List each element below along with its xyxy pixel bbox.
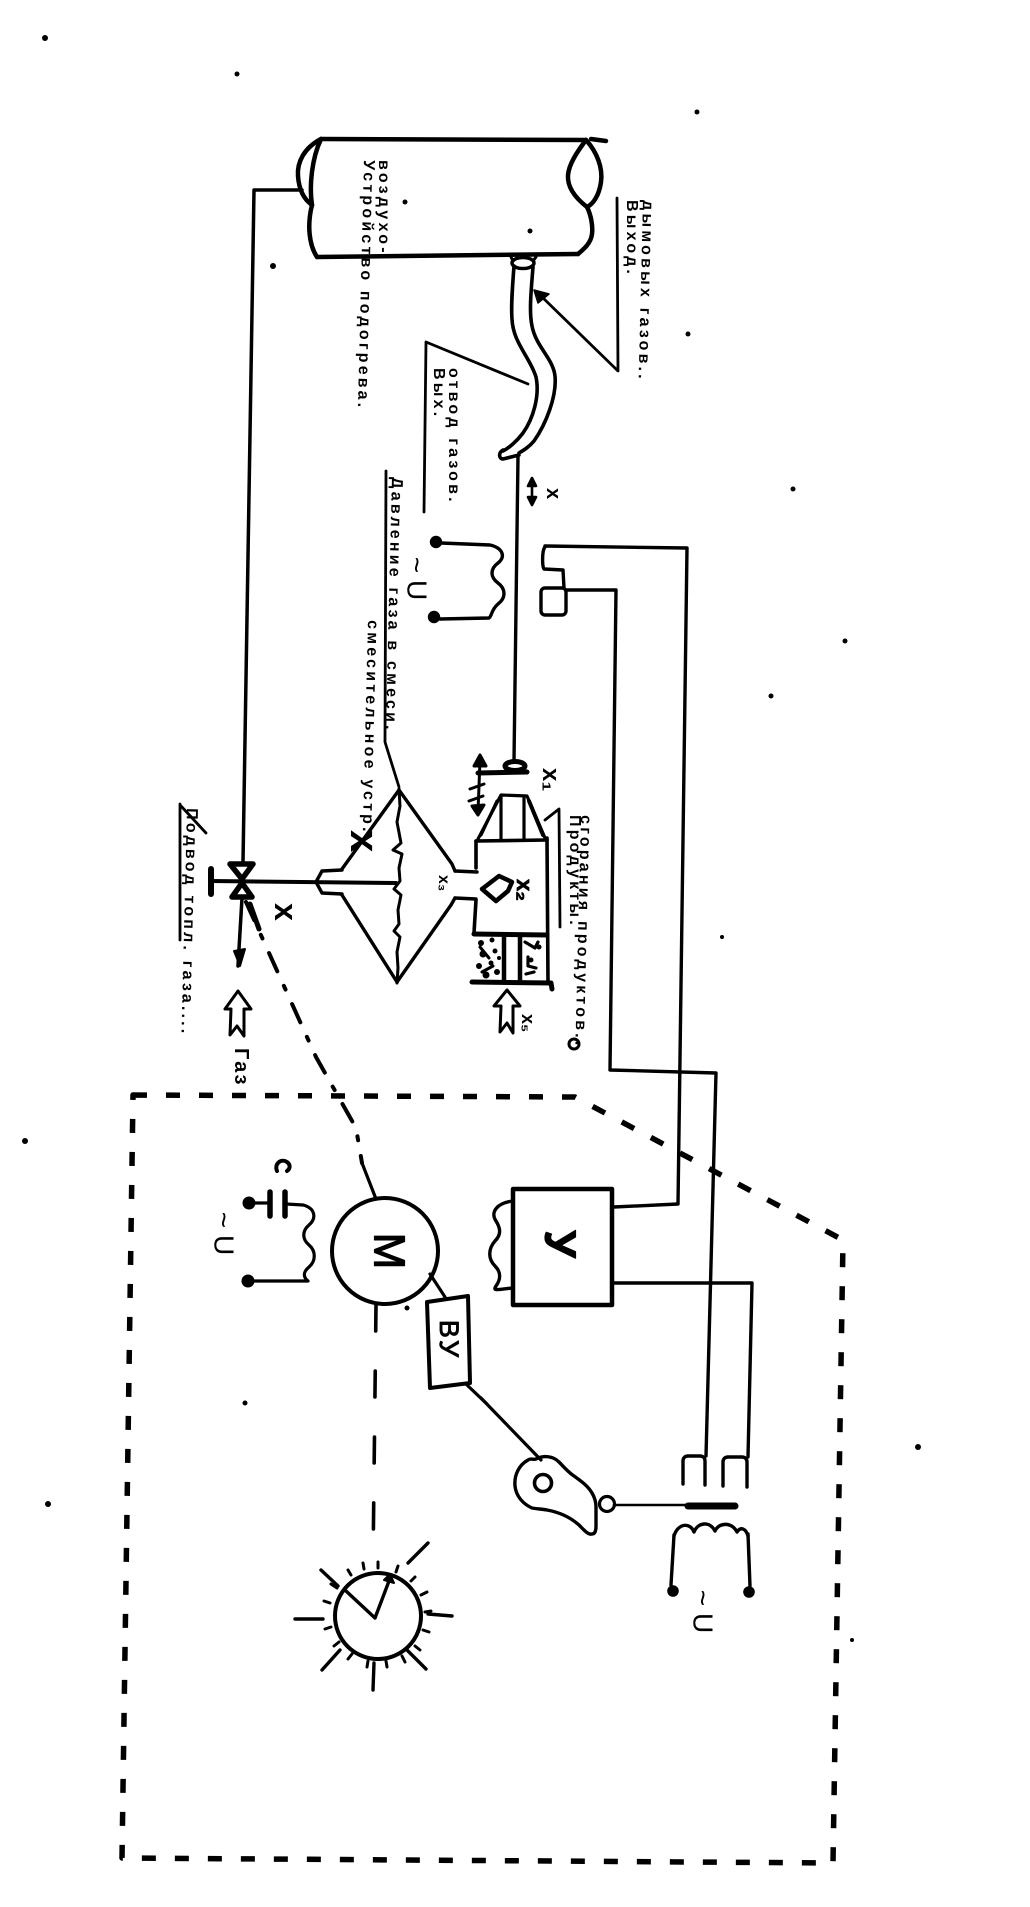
svg-text:x₁: x₁ <box>537 768 564 791</box>
svg-text:У: У <box>536 1230 585 1258</box>
svg-text:x: x <box>342 830 386 852</box>
svg-text:x₅: x₅ <box>518 1014 538 1032</box>
svg-text:Вых.: Вых. <box>430 368 447 419</box>
svg-text:x: x <box>268 903 304 921</box>
svg-text:~U: ~U <box>688 1590 719 1641</box>
svg-text:x: x <box>542 488 564 499</box>
svg-text:ВУ: ВУ <box>434 1320 464 1360</box>
svg-text:x₃: x₃ <box>435 875 452 891</box>
svg-text:~U: ~U <box>402 557 433 608</box>
svg-text:М: М <box>365 1233 414 1270</box>
svg-text:отвод газов.: отвод газов. <box>445 368 462 505</box>
svg-text:Газ: Газ <box>230 1048 252 1086</box>
svg-text:воздухо-: воздухо- <box>375 160 392 256</box>
svg-text:~U: ~U <box>209 1212 240 1263</box>
svg-text:x₂: x₂ <box>512 879 537 901</box>
